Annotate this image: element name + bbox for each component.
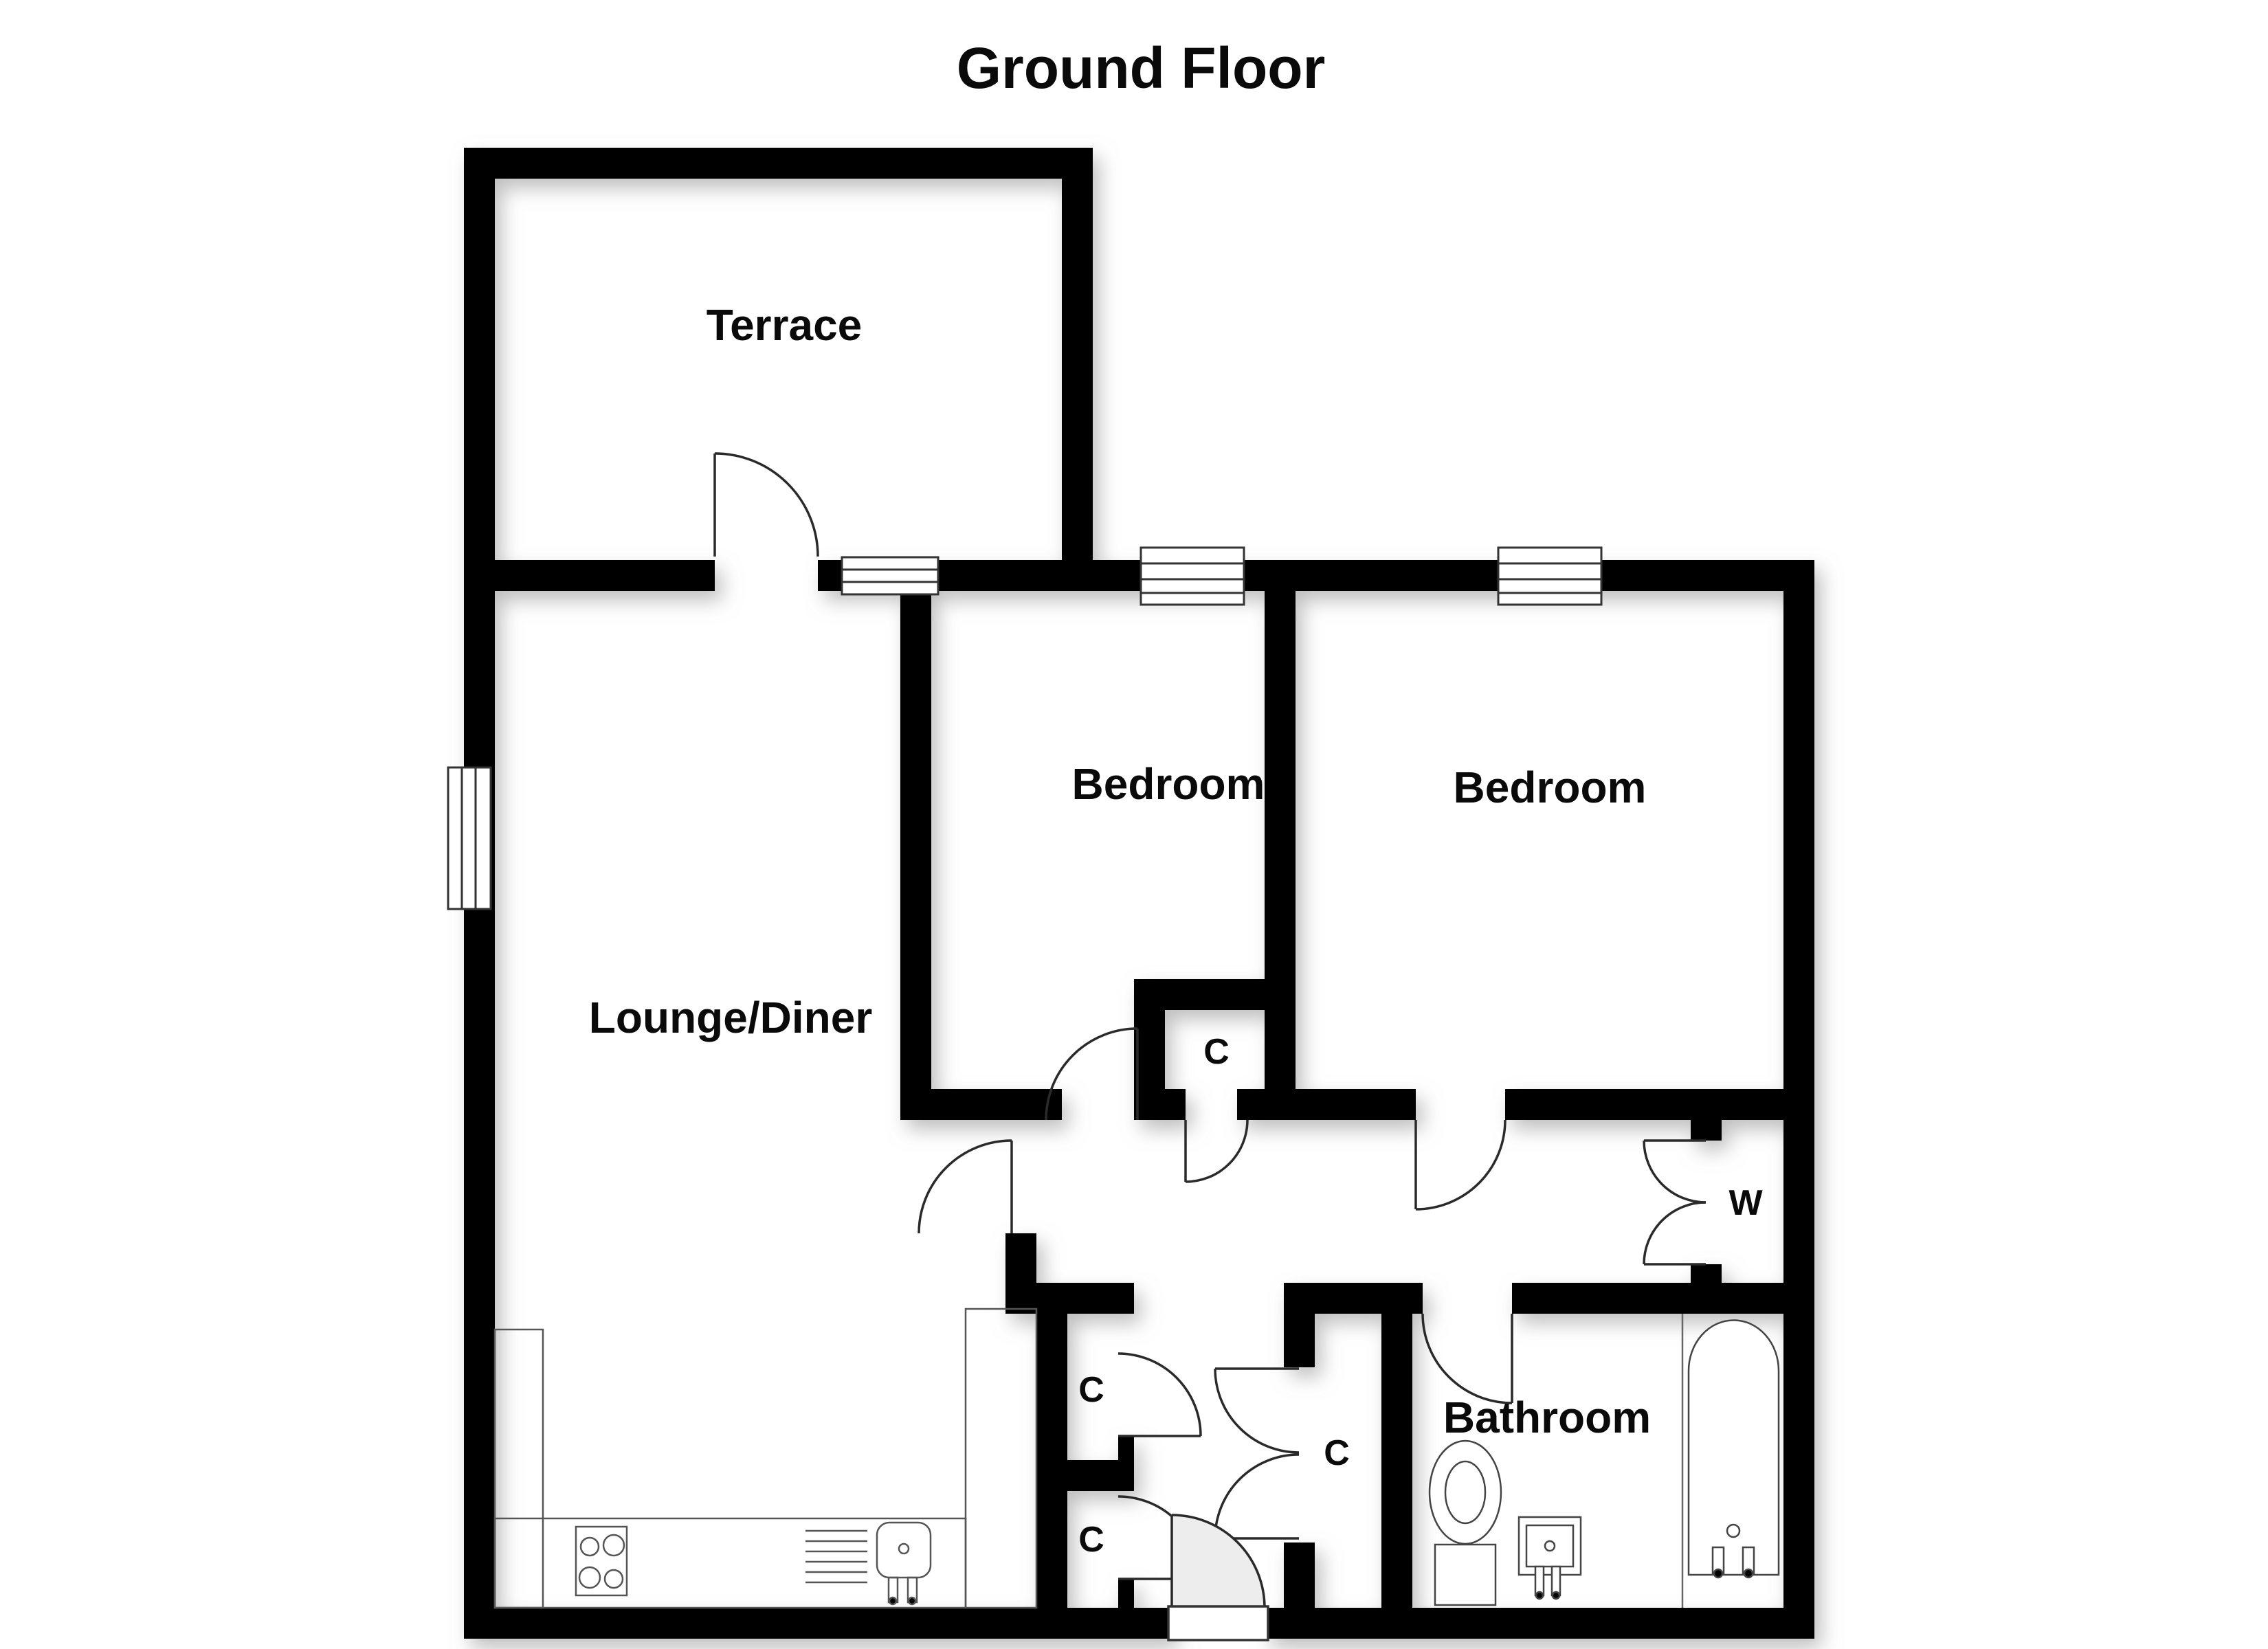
wall-segment xyxy=(1062,148,1093,591)
wall-segment xyxy=(900,1089,1062,1120)
floorplan-canvas: Ground Floor xyxy=(0,0,2268,1649)
label-terrace: Terrace xyxy=(707,300,863,350)
wall-segment xyxy=(464,591,495,1608)
wall-segment xyxy=(464,1608,1172,1639)
wall-segment xyxy=(900,591,931,1089)
label-closet-c3: C xyxy=(1078,1520,1104,1560)
wall-segment xyxy=(464,148,1093,179)
page-title: Ground Floor xyxy=(957,36,1326,100)
wall-segment xyxy=(464,148,495,591)
wall-segment xyxy=(1284,1283,1423,1314)
label-bedroom-2: Bedroom xyxy=(1454,763,1647,812)
wall-segment xyxy=(1512,1283,1691,1314)
room-bedroom-2 xyxy=(1296,591,1783,1089)
wall-segment xyxy=(1118,1579,1134,1608)
floorplan-svg: Ground Floor xyxy=(0,0,2268,1649)
wall-segment xyxy=(1165,1089,1186,1120)
label-lounge-diner: Lounge/Diner xyxy=(589,993,872,1042)
toilet-symbol xyxy=(1430,1441,1501,1605)
label-bedroom-1: Bedroom xyxy=(1072,759,1265,809)
label-bathroom: Bathroom xyxy=(1443,1393,1651,1442)
wall-segment xyxy=(1691,1120,1722,1141)
room-bedroom-1 xyxy=(931,591,1265,1089)
window-symbol-terrace xyxy=(842,557,938,594)
wall-segment xyxy=(1704,1089,1814,1120)
room-terrace xyxy=(495,179,1062,560)
window-symbol-lounge-left xyxy=(448,767,491,909)
label-closet-c4: C xyxy=(1324,1433,1350,1473)
wall-segment xyxy=(1036,1314,1067,1608)
room-lounge-diner xyxy=(495,591,900,1608)
window-symbol-bedroom-1 xyxy=(1141,548,1244,605)
wall-segment xyxy=(1691,1264,1722,1283)
label-wardrobe: W xyxy=(1728,1183,1763,1223)
wall-segment xyxy=(1505,1089,1704,1120)
bathtub-symbol xyxy=(1689,1320,1779,1578)
label-closet-c2: C xyxy=(1078,1370,1104,1410)
wall-segment xyxy=(1118,1436,1134,1460)
wall-segment xyxy=(1296,1089,1416,1120)
wall-segment xyxy=(1284,1543,1315,1608)
wall-segment xyxy=(1067,1460,1134,1491)
wall-segment xyxy=(1265,591,1296,1120)
wall-segment xyxy=(1284,1314,1315,1367)
wall-segment xyxy=(1381,1314,1412,1608)
wall-segment xyxy=(1265,1608,1814,1639)
wall-segment xyxy=(1691,1283,1814,1314)
label-closet-c1: C xyxy=(1203,1032,1230,1072)
window-symbol-bedroom-2 xyxy=(1498,548,1601,605)
wall-segment xyxy=(464,560,715,591)
wall-segment xyxy=(1237,1089,1265,1120)
